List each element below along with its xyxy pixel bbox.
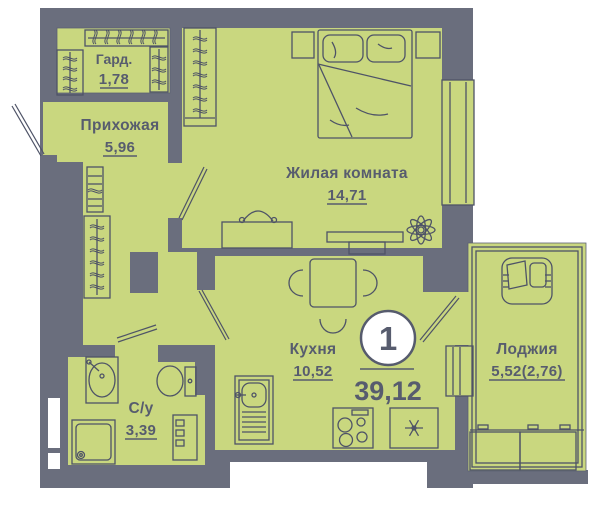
room-label-bathroom: С/у <box>128 400 153 417</box>
living-door-opening <box>168 163 182 218</box>
room-area-living: 14,71 <box>327 187 366 204</box>
entrance-door-icon <box>12 104 44 156</box>
room-label-kitchen: Кухня <box>290 341 337 358</box>
room-label-hallway: Прихожая <box>81 117 160 134</box>
radiator-icon <box>48 398 60 448</box>
floor-plan: Гард. 1,78 Прихожая 5,96 Жилая комната 1… <box>0 0 600 523</box>
room-area-loggia: 5,52(2,76) <box>491 363 562 380</box>
room-label-loggia: Лоджия <box>496 341 557 358</box>
floor-plan-canvas: Гард. 1,78 Прихожая 5,96 Жилая комната 1… <box>0 0 600 523</box>
entrance-opening <box>43 102 57 160</box>
room-label-living: Жилая комната <box>285 165 408 182</box>
room-area-kitchen: 10,52 <box>293 363 332 380</box>
total-area: 39,12 <box>354 376 422 406</box>
room-label-garderob: Гард. <box>96 51 133 67</box>
bathroom-door-opening <box>115 345 158 357</box>
rooms-count: 1 <box>379 320 397 357</box>
room-area-bathroom: 3,39 <box>126 422 156 439</box>
radiator-icon <box>48 453 60 469</box>
window-icon <box>446 346 473 396</box>
room-area-hallway: 5,96 <box>105 139 135 156</box>
room-area-garderob: 1,78 <box>99 71 129 88</box>
window-icon <box>442 80 474 205</box>
